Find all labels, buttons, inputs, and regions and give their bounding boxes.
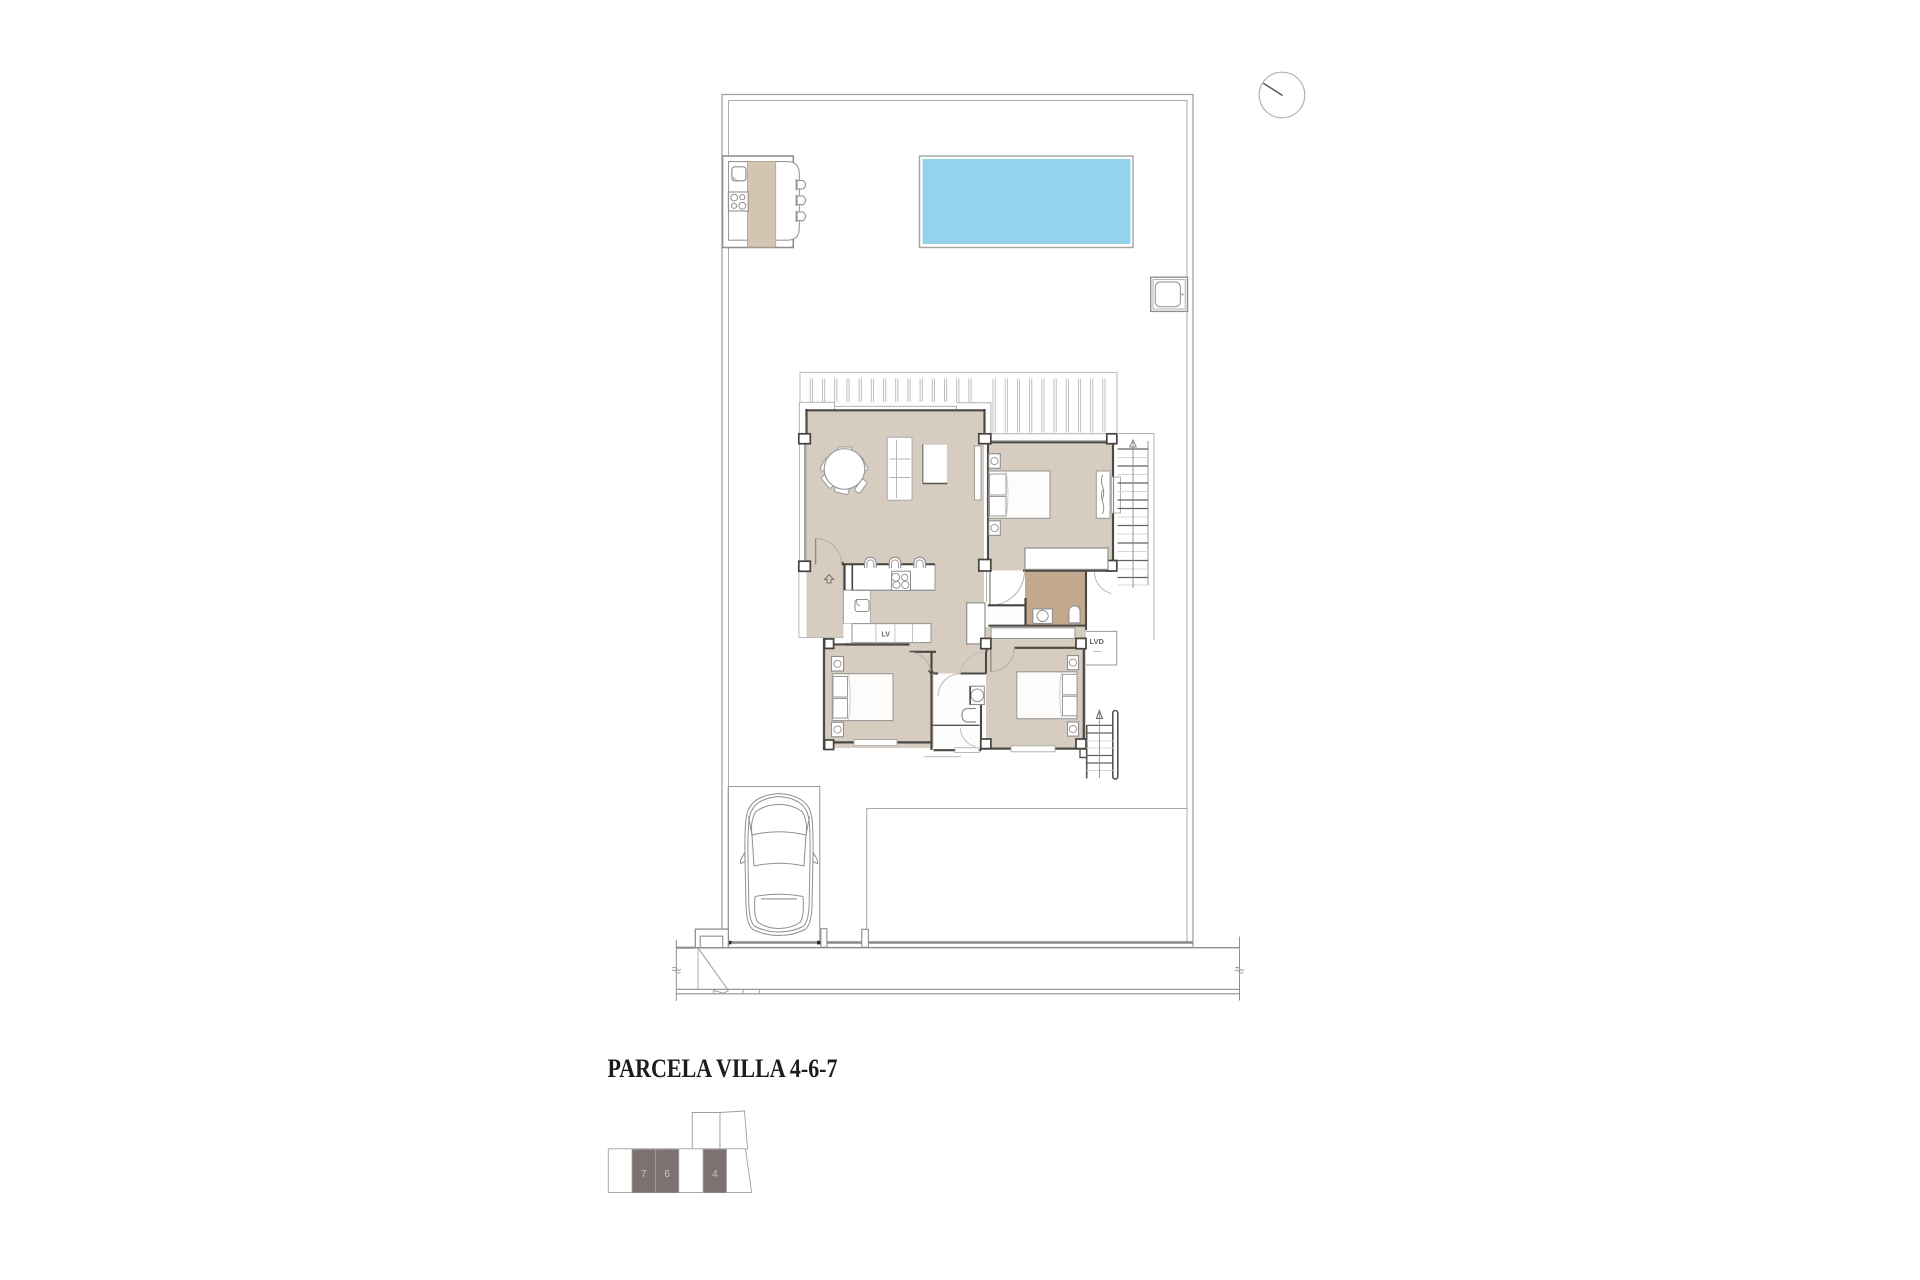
svg-text:PARCELA VILLA 4-6-7: PARCELA VILLA 4-6-7	[608, 1053, 838, 1083]
svg-text:LV: LV	[882, 632, 891, 639]
svg-text:LVD: LVD	[1090, 637, 1105, 646]
svg-text:6: 6	[664, 1169, 670, 1180]
svg-text:7: 7	[641, 1169, 647, 1180]
svg-text:4: 4	[712, 1169, 718, 1180]
